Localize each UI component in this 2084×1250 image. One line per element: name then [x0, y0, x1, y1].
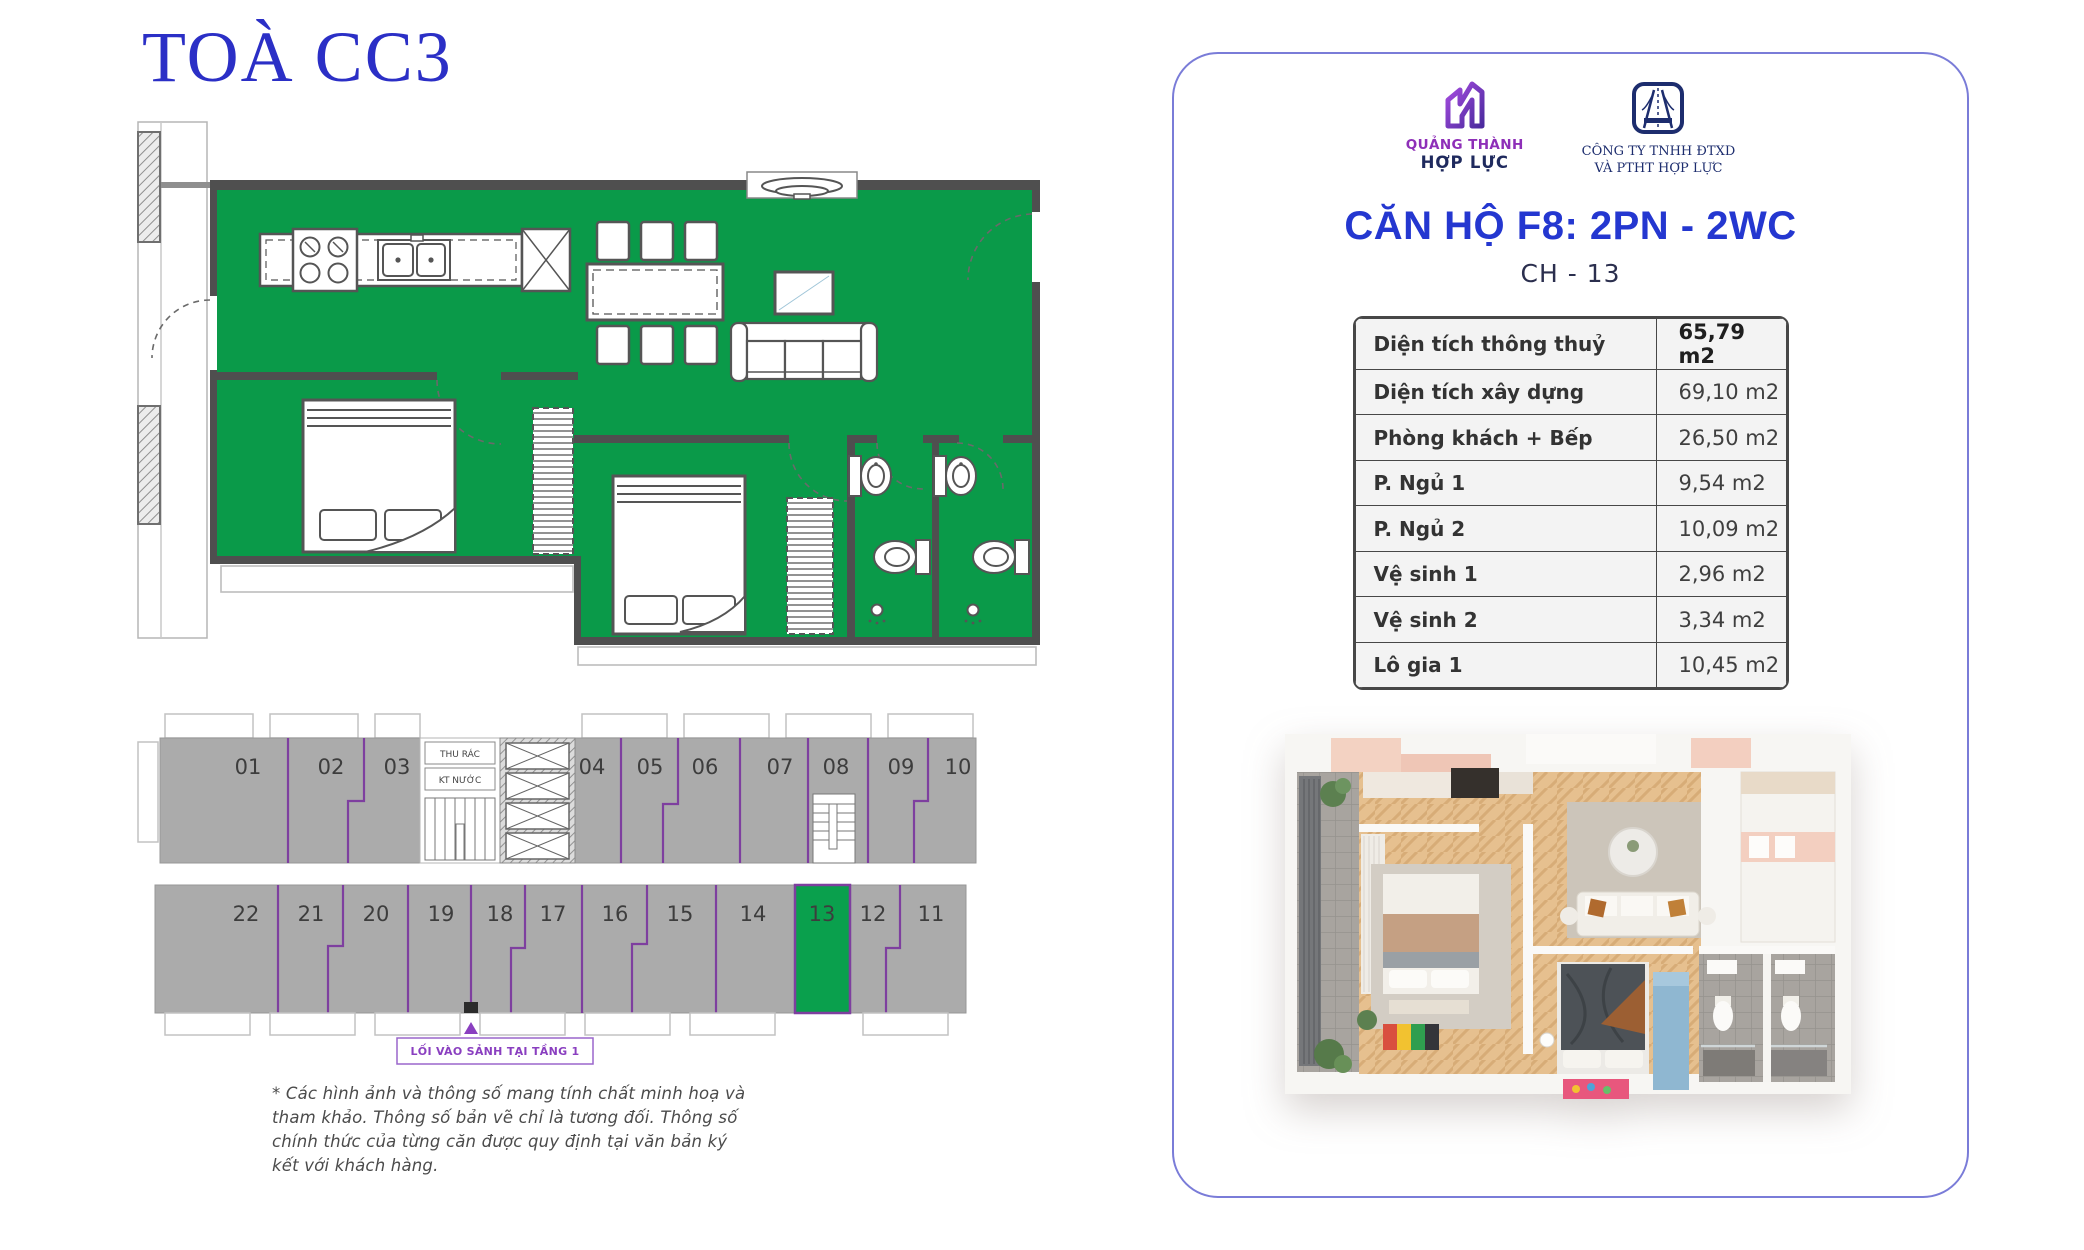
area-table: Diện tích thông thuỷ65,79 m2 Diện tích x…: [1355, 318, 1787, 689]
unit-number: 15: [667, 902, 694, 926]
core-label-water: KT NƯỚC: [439, 774, 482, 786]
bedroom-2: [613, 476, 833, 634]
building-title: TOÀ CC3: [142, 16, 453, 99]
unit-title: CĂN HỘ F8: 2PN - 2WC: [1174, 204, 1967, 249]
unit-number: 21: [298, 902, 325, 926]
entrance-arrow-icon: [464, 1022, 478, 1034]
ceiling-fan-icon: [747, 172, 857, 199]
unit-number: 19: [428, 902, 455, 926]
shaft-icon: [522, 229, 570, 291]
area-table-wrap: Diện tích thông thuỷ65,79 m2 Diện tích x…: [1353, 316, 1789, 691]
unit-number: 03: [384, 755, 411, 779]
elevators-icon: [500, 738, 575, 863]
disclaimer-note: * Các hình ảnh và thông số mang tính chấ…: [272, 1082, 750, 1178]
company-line-1: CÔNG TY TNHH ĐTXD: [1582, 144, 1736, 159]
unit-number: 09: [888, 755, 915, 779]
wardrobe-2: [787, 498, 833, 634]
unit-number: 02: [318, 755, 345, 779]
unit-number: 11: [918, 902, 945, 926]
stairwell-08-icon: [813, 794, 855, 863]
unit-number: 10: [945, 755, 972, 779]
unit-number: 17: [540, 902, 567, 926]
bed-1: [303, 400, 455, 552]
apartment-floor-plan: [135, 110, 1050, 668]
unit-number: 12: [860, 902, 887, 926]
sink-icon: [378, 235, 450, 280]
sofa: [731, 323, 877, 381]
unit-number: 05: [637, 755, 664, 779]
unit-number: 18: [487, 902, 514, 926]
unit-number: 08: [823, 755, 850, 779]
brand-hop-luc: CÔNG TY TNHH ĐTXD VÀ PTHT HỢP LỰC: [1582, 80, 1736, 178]
unit-number-highlighted: 13: [809, 902, 836, 926]
wardrobe-1: [533, 408, 573, 554]
stove-icon: [293, 229, 357, 291]
table-row: Vệ sinh 12,96 m2: [1355, 551, 1786, 597]
render-balcony: [1297, 772, 1359, 1073]
floor-plate-diagram: THU RÁC KT NƯỚC: [135, 686, 1005, 1076]
unit-code: CH - 13: [1174, 259, 1967, 288]
company-logo-icon: [1630, 80, 1686, 136]
unit-number: 04: [579, 755, 606, 779]
unit-number: 01: [235, 755, 262, 779]
bed-2: [613, 476, 745, 634]
table-row: Lô gia 110,45 m2: [1355, 642, 1786, 688]
column: [138, 406, 160, 524]
unit-number: 16: [602, 902, 629, 926]
balcony-outlines-bottom: [165, 1013, 948, 1035]
core-label-trash: THU RÁC: [439, 748, 480, 760]
brand-line-1: QUẢNG THÀNH: [1406, 137, 1524, 153]
stairs-icon: [425, 798, 495, 860]
render-living-room: [1560, 802, 1716, 938]
render-bathrooms: [1699, 946, 1835, 1082]
building-logo-icon: [1442, 80, 1488, 130]
unit-number: 06: [692, 755, 719, 779]
loggia-corridor: [138, 122, 207, 638]
entrance-label: LỐI VÀO SẢNH TẠI TẦNG 1: [411, 1043, 580, 1058]
brand-quang-thanh: QUẢNG THÀNH HỢP LỰC: [1406, 80, 1524, 172]
logos-row: QUẢNG THÀNH HỢP LỰC CÔNG TY TNHH ĐTXD VÀ…: [1174, 80, 1967, 178]
brand-line-2: HỢP LỰC: [1406, 153, 1524, 172]
table-row: Vệ sinh 23,34 m2: [1355, 597, 1786, 643]
unit-number: 14: [740, 902, 767, 926]
dining-set: [587, 222, 723, 364]
unit-number: 07: [767, 755, 794, 779]
table-row: Phòng khách + Bếp26,50 m2: [1355, 415, 1786, 461]
table-row: P. Ngủ 19,54 m2: [1355, 460, 1786, 506]
render-wardrobe: [1741, 772, 1835, 942]
unit-number: 20: [363, 902, 390, 926]
company-line-2: VÀ PTHT HỢP LỰC: [1594, 161, 1722, 176]
table-row: P. Ngủ 210,09 m2: [1355, 506, 1786, 552]
unit-info-card: QUẢNG THÀNH HỢP LỰC CÔNG TY TNHH ĐTXD VÀ…: [1172, 52, 1969, 1198]
render-blue-wardrobe: [1653, 972, 1689, 1090]
tv: [775, 272, 833, 314]
table-row: Diện tích thông thuỷ65,79 m2: [1355, 318, 1786, 369]
column: [138, 132, 160, 242]
table-row: Diện tích xây dựng69,10 m2: [1355, 369, 1786, 415]
unit-number: 22: [233, 902, 260, 926]
kitchen: [260, 229, 570, 291]
render-3d: [1271, 724, 1871, 1109]
render-kitchen: [1363, 768, 1533, 798]
